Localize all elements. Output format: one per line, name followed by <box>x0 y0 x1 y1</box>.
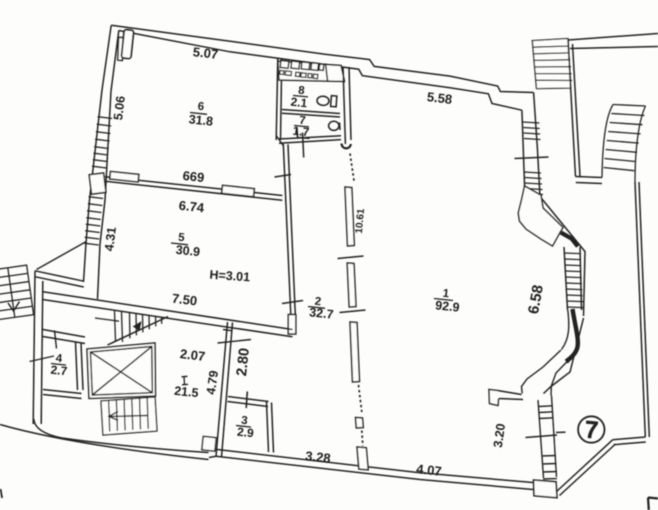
svg-text:2.9: 2.9 <box>236 425 254 441</box>
svg-text:H=3.01: H=3.01 <box>209 268 251 285</box>
svg-text:31.8: 31.8 <box>188 112 214 128</box>
svg-text:7.50: 7.50 <box>171 291 198 309</box>
svg-text:5.58: 5.58 <box>426 89 453 107</box>
svg-text:92.9: 92.9 <box>435 298 461 314</box>
svg-text:669: 669 <box>182 168 205 185</box>
svg-text:4.07: 4.07 <box>416 461 443 479</box>
svg-text:3.28: 3.28 <box>305 448 332 466</box>
svg-text:1.7: 1.7 <box>292 124 310 140</box>
svg-text:2.7: 2.7 <box>50 363 68 379</box>
svg-text:2.07: 2.07 <box>179 346 206 364</box>
svg-text:6.74: 6.74 <box>178 198 205 216</box>
svg-text:5.07: 5.07 <box>192 44 219 62</box>
svg-text:6: 6 <box>197 101 205 114</box>
svg-text:2.1: 2.1 <box>290 95 308 111</box>
svg-text:5.06: 5.06 <box>111 95 128 121</box>
svg-text:2.80: 2.80 <box>234 347 253 377</box>
svg-text:21.5: 21.5 <box>174 384 200 400</box>
svg-text:4.31: 4.31 <box>102 226 119 252</box>
svg-text:32.7: 32.7 <box>309 305 335 321</box>
svg-text:30.9: 30.9 <box>175 243 201 259</box>
svg-text:10.61: 10.61 <box>354 208 367 234</box>
svg-text:7: 7 <box>584 416 599 443</box>
